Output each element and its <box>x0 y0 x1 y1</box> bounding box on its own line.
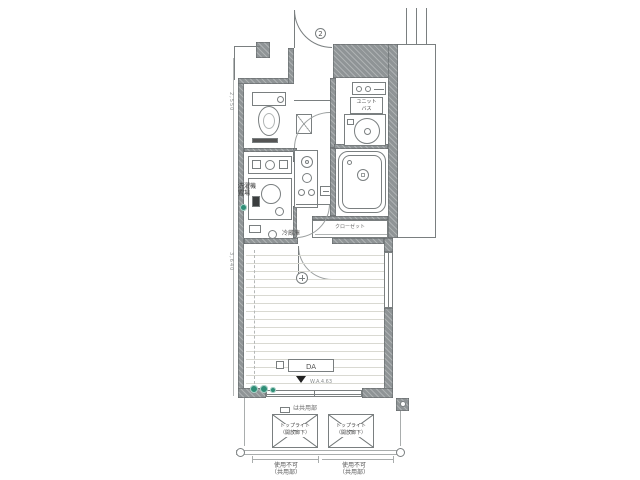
unit-top-wall-left <box>238 78 294 84</box>
caption-right-line2: （共用部） <box>330 470 378 477</box>
hatch-box-left-line2: （開放廊下） <box>273 431 317 437</box>
bathtub-faucet-icon <box>347 160 352 165</box>
sliding-window-meeting-stile <box>314 391 315 397</box>
da-label: DA <box>289 363 333 371</box>
caption-right: 使用不可 （共用部） <box>330 463 378 477</box>
toilet-bottom-wall <box>244 148 294 152</box>
room-right-wall-upper <box>384 238 393 252</box>
leader-tick-2 <box>318 456 319 463</box>
unit-bath-label-line2: バス <box>351 107 382 113</box>
window-annotation: W.A.4.63 <box>310 380 332 386</box>
green-marker-icon-3 <box>270 387 276 393</box>
leader-tick-3 <box>393 456 394 463</box>
entrance-number-text: 2 <box>316 30 325 38</box>
closet-label: クローゼット <box>313 225 387 231</box>
entrance-number-badge: 2 <box>315 28 326 39</box>
handrail-line-2 <box>236 454 404 455</box>
hatch-box-left-line1: トップライト <box>273 424 317 430</box>
green-marker-icon-1 <box>250 385 258 393</box>
handrail-line-1 <box>236 450 404 451</box>
kitchen-counter <box>294 150 318 208</box>
fridge-marker-icon <box>268 230 277 239</box>
kitchen-sink-drain-icon <box>305 160 309 164</box>
washstand-drain-icon <box>364 128 371 135</box>
toilet-flush-knob <box>277 96 284 103</box>
balcony-left-edge <box>244 398 245 446</box>
washstand-bowl-icon <box>354 118 380 144</box>
washbowl-icon <box>261 184 281 204</box>
da-outlet-icon <box>276 361 284 369</box>
burner-icon-left <box>298 189 305 196</box>
outer-boundary-line-left <box>234 46 235 80</box>
bathtub-drain-grate <box>361 173 365 177</box>
toilet-tank <box>252 92 286 106</box>
washstand-counter <box>344 114 386 146</box>
washstand-tap-icon <box>347 119 354 125</box>
green-marker-icon-2 <box>260 385 268 393</box>
pipe-line-2 <box>416 8 417 44</box>
leader-line-right <box>322 459 394 460</box>
room-area-dashed-line <box>254 250 255 384</box>
unit-bath-label-line1: ユニット <box>351 100 382 106</box>
da-box: DA <box>288 359 334 372</box>
entrance-door-arc <box>294 10 332 48</box>
room-bottom-wall-right <box>362 388 393 398</box>
pillar-post-icon <box>400 401 406 407</box>
hall-left-wall <box>288 48 294 84</box>
kitchen-panel-icon <box>320 186 331 196</box>
ceiling-fixture-symbol <box>296 272 308 284</box>
dimension-text-upper: 2,550 <box>228 92 233 111</box>
hatch-box-right-line2: （開放廊下） <box>329 431 373 437</box>
hatch-box-left: トップライト （開放廊下） <box>272 414 318 448</box>
right-outer-boundary <box>435 44 436 237</box>
kitchen-panel-mark <box>323 191 329 192</box>
utility-marker-icon <box>240 204 247 211</box>
drain-icon <box>275 207 284 216</box>
handrail-post-left-icon <box>236 448 245 457</box>
burner-icon-right <box>308 189 315 196</box>
toilet-bowl-inner <box>263 113 275 129</box>
room-top-wall-right <box>332 238 384 244</box>
vanity-cabinet-icon <box>252 160 261 169</box>
fridge-label: 冷蔵庫 <box>282 231 300 238</box>
caption-left: 使用不可 （共用部） <box>262 463 310 477</box>
neighbor-separation-line <box>398 237 436 238</box>
handrail-post-right-icon <box>396 448 405 457</box>
leader-line-left <box>252 459 318 460</box>
pipe-connector-line <box>396 44 436 45</box>
common-corridor-wall-band <box>333 44 396 78</box>
caption-left-line2: （共用部） <box>262 470 310 477</box>
outer-boundary-line-top <box>234 46 260 47</box>
vanity-mirror-icon <box>279 160 288 169</box>
pipe-line-1 <box>406 8 407 44</box>
legend-square-icon <box>280 407 290 413</box>
burner-icon-large <box>302 173 312 183</box>
unit-right-wall-upper <box>388 44 398 238</box>
toilet-mat <box>252 138 278 143</box>
sliding-window <box>266 390 362 397</box>
vanity-faucet-icon <box>265 160 275 170</box>
hall-right-wall <box>330 78 336 148</box>
floor-plan-image: 2 <box>0 0 640 480</box>
panel-knob-right <box>365 86 371 92</box>
direction-triangle-marker <box>296 376 306 383</box>
vanity-counter <box>248 156 292 174</box>
corridor-door-leaf <box>296 204 330 205</box>
side-window-mullion <box>388 253 389 307</box>
kitchen-sink-icon <box>301 156 313 168</box>
hatch-box-right: トップライト （開放廊下） <box>328 414 374 448</box>
bathtub-outer <box>338 151 386 213</box>
entrance-door-leaf <box>294 10 295 48</box>
entrance-pillar <box>256 42 270 58</box>
room-right-wall-lower <box>384 308 393 398</box>
laundry-label-line2: 置場 <box>238 191 256 198</box>
toilet-bowl <box>258 106 280 136</box>
panel-knob-left <box>356 86 362 92</box>
bathtub-drain-icon <box>357 169 369 181</box>
bath-left-wall <box>330 148 336 216</box>
side-window <box>384 252 393 308</box>
closet-shelf-line <box>315 234 387 235</box>
unit-bath-label-box: ユニット バス <box>350 97 383 114</box>
fixture-cross-v <box>302 275 303 281</box>
bath-control-panel <box>352 82 386 95</box>
bathtub-inner <box>342 155 382 209</box>
legend-note: は共用部 <box>293 406 317 413</box>
panel-slot <box>374 89 384 90</box>
hatch-box-right-line1: トップライト <box>329 424 373 430</box>
pipe-line-3 <box>426 8 427 44</box>
entrance-step-line <box>294 100 330 101</box>
dimension-text-lower: 3,640 <box>228 252 233 271</box>
laundry-label: 洗濯機 置場 <box>238 184 256 198</box>
outlet-box-icon <box>249 225 261 233</box>
leader-tick-1 <box>252 456 253 463</box>
